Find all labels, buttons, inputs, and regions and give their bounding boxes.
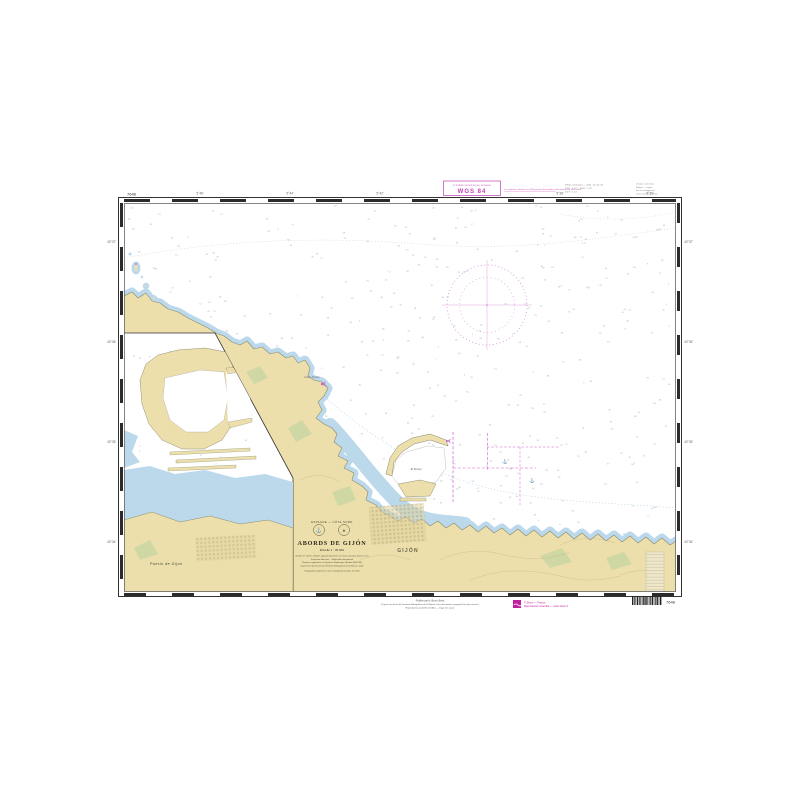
svg-text:37: 37 [588, 288, 591, 290]
svg-text:15: 15 [364, 414, 367, 416]
svg-text:61: 61 [455, 228, 458, 230]
city-blocks [369, 503, 427, 545]
lat-label: 43°34' [107, 540, 116, 544]
svg-text:62: 62 [480, 324, 483, 326]
svg-text:29: 29 [427, 372, 430, 374]
svg-text:27: 27 [345, 282, 348, 284]
svg-text:68: 68 [281, 338, 284, 340]
svg-text:12: 12 [320, 258, 323, 260]
publication-line: Publiée par le Shom, Brest [416, 600, 445, 603]
corrections-line: Grandes corrections [636, 183, 654, 186]
svg-text:41: 41 [458, 272, 461, 274]
svg-text:66: 66 [390, 306, 393, 308]
svg-text:78: 78 [443, 396, 446, 398]
svg-text:79: 79 [653, 444, 656, 446]
svg-text:46: 46 [327, 317, 330, 319]
svg-text:5: 5 [669, 326, 671, 328]
title-note-3: Positions rapportées au Système Géodésiq… [302, 561, 362, 564]
svg-text:8: 8 [475, 210, 477, 212]
svg-text:54: 54 [131, 207, 134, 209]
svg-text:12: 12 [432, 319, 435, 321]
svg-text:79: 79 [360, 342, 363, 344]
svg-text:9: 9 [538, 520, 540, 522]
svg-text:10: 10 [430, 285, 433, 287]
svg-text:5: 5 [583, 383, 585, 385]
svg-text:47: 47 [433, 238, 436, 240]
svg-text:68: 68 [480, 338, 483, 340]
svg-text:4: 4 [389, 272, 391, 274]
svg-text:75: 75 [646, 377, 649, 379]
svg-text:74: 74 [382, 458, 385, 460]
svg-text:13: 13 [568, 290, 571, 292]
svg-text:71: 71 [631, 505, 634, 507]
svg-text:13: 13 [212, 210, 215, 212]
svg-text:29: 29 [209, 276, 212, 278]
title-note-4: D'après les documents de l'Instituto Hid… [301, 564, 364, 567]
svg-text:62: 62 [432, 444, 435, 446]
anchor-icon: ⚓ [502, 458, 508, 464]
svg-text:17: 17 [584, 243, 587, 245]
svg-text:22: 22 [550, 236, 553, 238]
svg-text:4: 4 [472, 334, 474, 336]
svg-text:53: 53 [470, 211, 473, 213]
svg-text:51: 51 [624, 309, 627, 311]
svg-text:45: 45 [236, 333, 239, 335]
light-flare-icon [447, 439, 451, 444]
copyright-line-2: Reproduction interdite — www.shom.fr [524, 604, 568, 608]
svg-text:63: 63 [522, 278, 525, 280]
svg-text:35: 35 [627, 274, 630, 276]
svg-text:32: 32 [418, 264, 421, 266]
svg-text:83: 83 [661, 260, 664, 262]
anchorage-symbols: ⚓ ⚓ [502, 458, 535, 483]
svg-text:42: 42 [621, 312, 624, 314]
svg-text:51: 51 [522, 443, 525, 445]
svg-text:35: 35 [507, 405, 510, 407]
svg-text:22: 22 [432, 207, 435, 209]
lon-label: 5°38' [556, 192, 564, 196]
svg-text:57: 57 [276, 346, 279, 348]
chart-number-top-left: 7648 [127, 192, 137, 197]
svg-text:13: 13 [494, 445, 497, 447]
svg-text:62: 62 [408, 331, 411, 333]
svg-text:64: 64 [436, 259, 439, 261]
svg-text:17: 17 [597, 211, 600, 213]
svg-text:66: 66 [138, 252, 141, 254]
svg-text:42: 42 [397, 246, 400, 248]
svg-text:33: 33 [171, 238, 174, 240]
svg-text:15: 15 [381, 355, 384, 357]
svg-text:63: 63 [208, 302, 211, 304]
svg-text:8: 8 [537, 245, 539, 247]
emblem-anchor-glyph: ⚓ [316, 527, 322, 534]
svg-text:76: 76 [636, 437, 639, 439]
svg-text:85: 85 [266, 219, 269, 221]
svg-text:47: 47 [210, 316, 213, 318]
svg-text:51: 51 [189, 281, 192, 283]
svg-text:66: 66 [458, 353, 461, 355]
svg-text:70: 70 [596, 233, 599, 235]
svg-text:39: 39 [441, 297, 444, 299]
svg-text:64: 64 [493, 519, 496, 521]
svg-text:38: 38 [382, 329, 385, 331]
svg-text:49: 49 [342, 367, 345, 369]
title-note-5: Topographie d'après les cartes espagnole… [304, 570, 360, 573]
svg-text:41: 41 [461, 207, 464, 209]
svg-text:56: 56 [634, 416, 637, 418]
svg-text:85: 85 [177, 246, 180, 248]
svg-text:40: 40 [128, 219, 131, 221]
chart-number-bottom-right: 7648 [666, 600, 676, 605]
svg-text:83: 83 [659, 400, 662, 402]
svg-text:55: 55 [470, 377, 473, 379]
svg-text:66: 66 [519, 342, 522, 344]
svg-text:4: 4 [464, 374, 466, 376]
publication-line: Reproduction partielle interdite — tirag… [406, 606, 455, 609]
svg-text:28: 28 [216, 256, 219, 258]
svg-text:1: 1 [297, 296, 299, 298]
svg-text:17: 17 [543, 404, 546, 406]
svg-text:39: 39 [519, 395, 522, 397]
svg-text:47: 47 [476, 488, 479, 490]
svg-text:28: 28 [372, 341, 375, 343]
svg-text:3: 3 [634, 463, 636, 465]
svg-text:63: 63 [551, 267, 554, 269]
publication-line: D'après les levés de l'Instituto Hidrogr… [381, 603, 479, 606]
lon-label: 5°44' [286, 192, 294, 196]
svg-text:26: 26 [556, 438, 559, 440]
svg-text:42: 42 [490, 461, 493, 463]
svg-text:67: 67 [158, 214, 161, 216]
compass-rose [442, 260, 532, 350]
svg-text:61: 61 [610, 421, 613, 423]
svg-text:83: 83 [478, 435, 481, 437]
svg-text:47: 47 [412, 364, 415, 366]
svg-text:21: 21 [374, 211, 377, 213]
inset-title: Puerto de Gijón [150, 562, 182, 566]
svg-text:73: 73 [412, 255, 415, 257]
svg-text:70: 70 [366, 355, 369, 357]
svg-text:63: 63 [543, 412, 546, 414]
svg-text:74: 74 [651, 333, 654, 335]
svg-text:24: 24 [527, 307, 530, 309]
svg-text:24: 24 [557, 470, 560, 472]
svg-text:3: 3 [532, 372, 534, 374]
svg-text:77: 77 [486, 466, 489, 468]
svg-text:44: 44 [608, 410, 611, 412]
svg-text:14: 14 [199, 303, 202, 305]
svg-text:35: 35 [150, 224, 153, 226]
svg-text:4: 4 [359, 320, 361, 322]
svg-text:76: 76 [431, 416, 434, 418]
lat-label: 43°35' [107, 440, 116, 444]
svg-text:32: 32 [662, 310, 665, 312]
svg-text:20: 20 [500, 486, 503, 488]
svg-text:54: 54 [290, 245, 293, 247]
svg-text:83: 83 [579, 360, 582, 362]
svg-text:76: 76 [419, 317, 422, 319]
svg-text:20: 20 [604, 484, 607, 486]
svg-text:10: 10 [220, 214, 223, 216]
svg-text:45: 45 [440, 503, 443, 505]
svg-text:67: 67 [350, 400, 353, 402]
svg-text:47: 47 [207, 311, 210, 313]
top-margin: SYSTÈME GÉODÉSIQUE MONDIAL WGS 84 Les po… [444, 181, 659, 196]
corrections-line: cartes marines du Shom [636, 192, 658, 195]
svg-text:11: 11 [580, 236, 583, 238]
corrections-block-b: Grandes corrections Éditions — tirages V… [636, 183, 658, 196]
svg-text:69: 69 [406, 271, 409, 273]
svg-text:39: 39 [545, 470, 548, 472]
svg-text:56: 56 [394, 225, 397, 227]
inset-city-blocks [195, 534, 256, 561]
svg-text:2: 2 [321, 368, 323, 370]
svg-text:14: 14 [404, 227, 407, 229]
svg-text:38: 38 [547, 376, 550, 378]
svg-text:28: 28 [505, 475, 508, 477]
svg-text:8: 8 [305, 348, 307, 350]
svg-text:4: 4 [187, 236, 189, 238]
lights-table [646, 552, 664, 592]
svg-text:64: 64 [466, 392, 469, 394]
svg-text:84: 84 [446, 267, 449, 269]
svg-text:84: 84 [651, 292, 654, 294]
svg-text:77: 77 [291, 224, 294, 226]
lon-label: 5°46' [196, 192, 204, 196]
svg-text:39: 39 [654, 507, 657, 509]
barcode [632, 596, 661, 605]
svg-text:27: 27 [659, 273, 662, 275]
svg-text:42: 42 [380, 370, 383, 372]
svg-text:81: 81 [477, 249, 480, 251]
svg-text:29: 29 [561, 333, 564, 335]
svg-text:18: 18 [414, 308, 417, 310]
svg-text:28: 28 [599, 285, 602, 287]
svg-text:54: 54 [515, 496, 518, 498]
svg-text:46: 46 [532, 488, 535, 490]
svg-text:71: 71 [344, 238, 347, 240]
svg-text:19: 19 [499, 452, 502, 454]
svg-text:62: 62 [397, 357, 400, 359]
svg-text:67: 67 [665, 426, 668, 428]
svg-text:57: 57 [662, 379, 665, 381]
corrections-line: Voir le catalogue des [636, 189, 655, 192]
svg-text:50: 50 [668, 384, 671, 386]
svg-text:79: 79 [534, 315, 537, 317]
svg-text:51: 51 [409, 234, 412, 236]
svg-text:15: 15 [568, 312, 571, 314]
svg-text:26: 26 [466, 271, 469, 273]
title-note-1: Sondes en mètres réduites approximativem… [295, 555, 368, 558]
chart-title: ABORDS DE GIJÓN [297, 539, 366, 547]
nautical-chart-page: 8435481417462213477858791523281291217447… [0, 0, 800, 800]
svg-text:38: 38 [224, 301, 227, 303]
svg-text:53: 53 [517, 405, 520, 407]
svg-text:82: 82 [458, 487, 461, 489]
svg-text:34: 34 [385, 413, 388, 415]
svg-text:8: 8 [383, 340, 385, 342]
svg-text:56: 56 [663, 225, 666, 227]
svg-text:61: 61 [494, 368, 497, 370]
svg-text:64: 64 [620, 220, 623, 222]
svg-text:46: 46 [407, 422, 410, 424]
svg-text:25: 25 [629, 457, 632, 459]
corrections-line: Petites corrections — 2014 : 12, 31, 45 [565, 184, 604, 187]
svg-text:79: 79 [540, 207, 543, 209]
svg-text:81: 81 [464, 227, 467, 229]
svg-text:19: 19 [509, 497, 512, 499]
svg-text:24: 24 [489, 425, 492, 427]
svg-text:48: 48 [380, 297, 383, 299]
svg-text:53: 53 [537, 440, 540, 442]
svg-text:44: 44 [455, 339, 458, 341]
svg-text:47: 47 [437, 385, 440, 387]
svg-text:72: 72 [562, 361, 565, 363]
svg-text:49: 49 [542, 229, 545, 231]
svg-text:56: 56 [605, 268, 608, 270]
label-city: GIJÓN [397, 546, 419, 554]
svg-text:29: 29 [334, 205, 337, 207]
svg-text:32: 32 [560, 445, 563, 447]
svg-text:53: 53 [472, 481, 475, 483]
svg-text:78: 78 [542, 234, 545, 236]
emblem-star-glyph: ✶ [342, 528, 346, 534]
title-note-2: Projection Mercator — Ellipsoïde interna… [311, 558, 354, 561]
svg-text:46: 46 [316, 254, 319, 256]
svg-text:81: 81 [456, 242, 459, 244]
svg-text:2: 2 [544, 245, 546, 247]
svg-text:46: 46 [407, 340, 410, 342]
svg-text:56: 56 [291, 338, 294, 340]
svg-text:18: 18 [205, 254, 208, 256]
svg-text:10: 10 [607, 342, 610, 344]
svg-text:5: 5 [438, 347, 440, 349]
svg-text:67: 67 [562, 501, 565, 503]
svg-text:65: 65 [585, 239, 588, 241]
svg-text:34: 34 [411, 433, 414, 435]
wgs84-value: WGS 84 [458, 189, 487, 195]
svg-text:81: 81 [535, 205, 538, 207]
svg-text:36: 36 [325, 416, 328, 418]
nautical-chart: 8435481417462213477858791523281291217447… [0, 0, 800, 800]
svg-text:30: 30 [500, 503, 503, 505]
svg-text:19: 19 [243, 315, 246, 317]
svg-text:80: 80 [572, 511, 575, 513]
corrections-line: Éditions — tirages [636, 186, 652, 189]
svg-text:62: 62 [212, 253, 215, 255]
svg-text:14: 14 [175, 255, 178, 257]
svg-text:18: 18 [440, 481, 443, 483]
svg-text:47: 47 [477, 491, 480, 493]
svg-text:8: 8 [512, 334, 514, 336]
svg-text:79: 79 [577, 456, 580, 458]
svg-text:46: 46 [490, 259, 493, 261]
svg-text:49: 49 [633, 267, 636, 269]
svg-text:59: 59 [330, 308, 333, 310]
svg-text:75: 75 [456, 218, 459, 220]
svg-text:18: 18 [219, 297, 222, 299]
svg-text:52: 52 [544, 279, 547, 281]
svg-text:82: 82 [433, 499, 436, 501]
svg-text:16: 16 [424, 257, 427, 259]
svg-text:65: 65 [477, 355, 480, 357]
svg-text:62: 62 [268, 231, 271, 233]
svg-text:15: 15 [636, 482, 639, 484]
anchor-icon: ⚓ [529, 477, 535, 483]
svg-text:45: 45 [504, 304, 507, 306]
svg-text:68: 68 [540, 483, 543, 485]
svg-text:13: 13 [638, 412, 641, 414]
svg-text:84: 84 [132, 229, 135, 231]
label-cape: Cabo Torres [304, 375, 320, 379]
svg-text:48: 48 [421, 337, 424, 339]
svg-text:13: 13 [605, 278, 608, 280]
svg-text:34: 34 [435, 267, 438, 269]
svg-text:3: 3 [607, 217, 609, 219]
svg-text:16: 16 [540, 306, 543, 308]
svg-text:42: 42 [411, 418, 414, 420]
svg-text:13: 13 [581, 257, 584, 259]
svg-text:17: 17 [455, 400, 458, 402]
svg-text:9: 9 [277, 229, 279, 231]
svg-text:78: 78 [582, 428, 585, 430]
svg-text:15: 15 [586, 206, 589, 208]
copyright-line-1: © Shom — France [524, 601, 546, 605]
svg-text:45: 45 [429, 388, 432, 390]
svg-text:48: 48 [497, 339, 500, 341]
svg-text:19: 19 [458, 445, 461, 447]
svg-text:9: 9 [647, 264, 649, 266]
corrections-block-a: Petites corrections — 2014 : 12, 31, 45 … [565, 184, 604, 194]
svg-text:58: 58 [428, 443, 431, 445]
light-icon [135, 263, 137, 265]
svg-text:58: 58 [343, 233, 346, 235]
svg-text:69: 69 [558, 477, 561, 479]
svg-text:83: 83 [351, 298, 354, 300]
svg-text:38: 38 [534, 515, 537, 517]
svg-text:65: 65 [453, 464, 456, 466]
svg-text:73: 73 [406, 250, 409, 252]
svg-text:75: 75 [213, 311, 216, 313]
publication-notes: Publiée par le Shom, Brest D'après les l… [381, 600, 479, 610]
svg-text:16: 16 [269, 314, 272, 316]
wgs84-caption: SYSTÈME GÉODÉSIQUE MONDIAL [453, 184, 492, 187]
svg-text:66: 66 [590, 381, 593, 383]
lat-label: 43°37' [107, 240, 116, 244]
svg-text:5: 5 [666, 304, 668, 306]
svg-text:42: 42 [215, 259, 218, 261]
lat-label: 43°34' [684, 540, 693, 544]
svg-text:4: 4 [560, 286, 562, 288]
map-content: 8435481417462213477858791523281291217447… [124, 205, 676, 592]
svg-text:65: 65 [603, 326, 606, 328]
lat-label: 43°35' [684, 440, 693, 444]
svg-text:35: 35 [311, 257, 314, 259]
svg-text:81: 81 [359, 385, 362, 387]
svg-text:31: 31 [526, 346, 529, 348]
svg-text:74: 74 [599, 333, 602, 335]
svg-text:10: 10 [385, 280, 388, 282]
svg-text:12: 12 [169, 292, 172, 294]
svg-text:63: 63 [611, 429, 614, 431]
svg-text:37: 37 [607, 464, 610, 466]
svg-text:31: 31 [400, 304, 403, 306]
svg-text:71: 71 [565, 444, 568, 446]
bottom-margin: Publiée par le Shom, Brest D'après les l… [381, 596, 661, 609]
svg-text:28: 28 [584, 452, 587, 454]
svg-text:60: 60 [396, 372, 399, 374]
lat-label: 43°36' [107, 340, 116, 344]
